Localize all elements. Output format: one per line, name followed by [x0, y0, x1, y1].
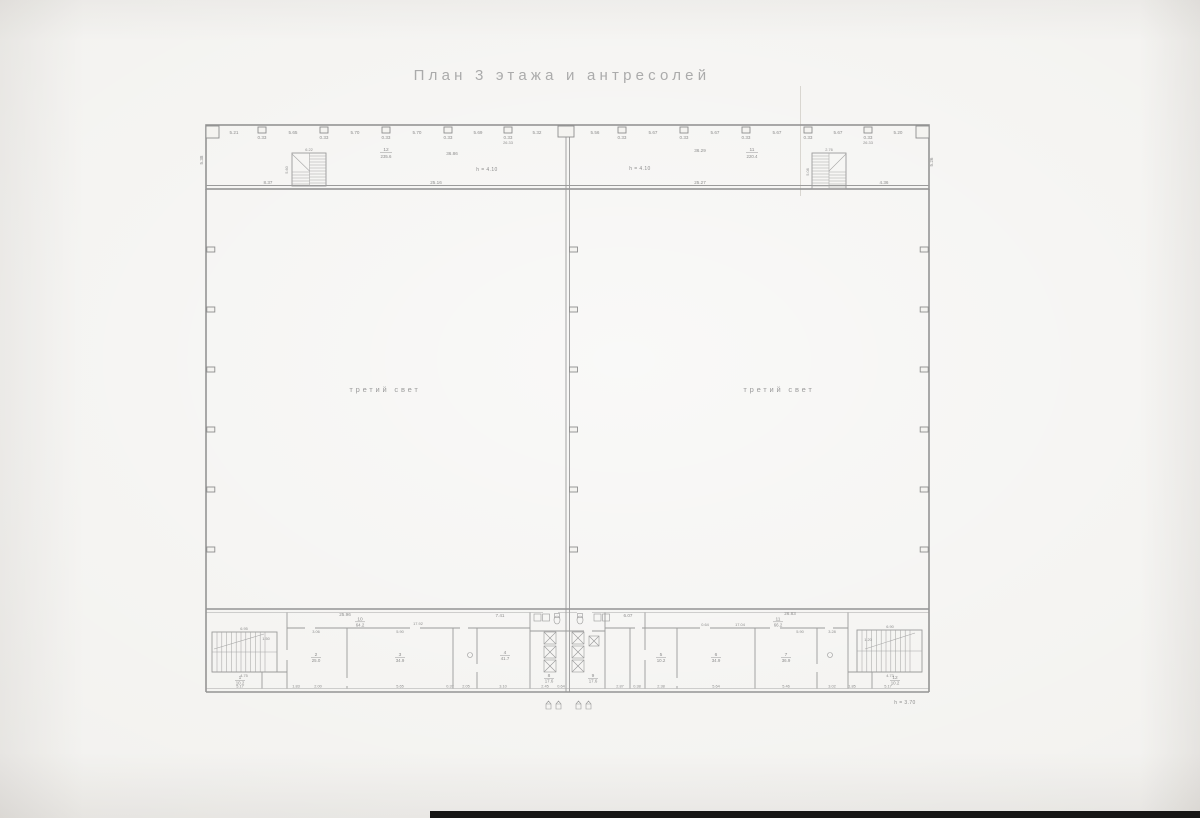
room-area: 17.6 — [589, 679, 598, 684]
height-note: h = 4.10 — [629, 166, 650, 172]
sink-icon — [594, 614, 601, 621]
dim-label: 2.87 — [616, 684, 624, 689]
room-area: 34.9 — [396, 658, 405, 663]
dim-label: 6.90 — [886, 624, 894, 629]
floor-plan-drawing: План 3 этажа и антресолей 5 — [0, 0, 1200, 818]
dim-label: 1.83 — [292, 684, 300, 689]
wall-pilaster — [920, 487, 928, 492]
wall-pilaster — [570, 427, 578, 432]
room-area: 25.0 — [312, 658, 321, 663]
dim-label: 5.08 — [805, 168, 810, 176]
dim-label: 0.37 — [446, 684, 454, 689]
dim-label: 0.33 — [258, 135, 267, 140]
dim-label: 3.28 — [828, 629, 836, 634]
stair-break-line — [292, 154, 310, 171]
dim-label: 0.33 — [444, 135, 453, 140]
dim-label: 5.65 — [396, 684, 404, 689]
partitions-left — [287, 613, 530, 689]
room-area: 10.2 — [657, 658, 666, 663]
dim-label: 17.04 — [735, 622, 746, 627]
dim-label: 5.67 — [711, 130, 720, 135]
dim-label: 8.37 — [264, 180, 273, 185]
dim-label: 5.90 — [796, 629, 804, 634]
wall-pilaster — [570, 307, 578, 312]
wall-pilaster — [207, 427, 215, 432]
wall-column — [864, 127, 872, 133]
dim-label: 6.95 — [240, 626, 248, 631]
room-area: 10.2 — [236, 681, 245, 686]
dim-label: 36.29 — [694, 148, 706, 153]
dim-label: 5.69 — [474, 130, 483, 135]
shaft-cross-lines — [544, 632, 599, 672]
dim-label: 0.64 — [557, 684, 565, 689]
stair-treads — [292, 156, 326, 184]
wall-pilaster — [207, 247, 215, 252]
double-height-halls: третий свет третий свет — [206, 189, 929, 609]
wall-column — [382, 127, 390, 133]
sink-icon — [543, 614, 550, 621]
dim-label: 6.22 — [305, 147, 313, 152]
wall-pilaster — [207, 307, 215, 312]
wall-pilaster — [207, 367, 215, 372]
dim-label: 1.20 — [864, 637, 872, 642]
wall-column — [742, 127, 750, 133]
dim-label: 25.16 — [430, 180, 442, 185]
dim-label: 0.33 — [382, 135, 391, 140]
partitions-right — [645, 613, 848, 689]
center-column — [558, 126, 574, 137]
room-area: 10.2 — [891, 681, 900, 686]
dim-label: 0.33 — [680, 135, 689, 140]
ground-floor-strip: 25.96 7.41 6.07 26.83 3.06 5.90 17.92 6.… — [206, 609, 929, 709]
wall-pilaster — [570, 487, 578, 492]
dim-label: 5.26 — [929, 157, 934, 166]
dim-label: 1.85 — [848, 684, 856, 689]
dim-label: 26.33 — [503, 140, 513, 145]
dim-label: 3.10 — [499, 684, 507, 689]
stair-ground-left — [212, 632, 287, 689]
dim-label: 2.38 — [657, 684, 665, 689]
room-area: 34.9 — [712, 658, 721, 663]
wall-pilaster — [207, 547, 215, 552]
wall-column — [618, 127, 626, 133]
dim-label: 5.67 — [834, 130, 843, 135]
wall-pilaster — [920, 367, 928, 372]
wall-pilaster — [207, 487, 215, 492]
room-number: 12 — [383, 147, 389, 153]
dim-label: 5.38 — [199, 155, 204, 164]
corner-column — [916, 126, 929, 138]
hall-label-left: третий свет — [349, 385, 420, 394]
dim-label: 5.70 — [413, 130, 422, 135]
wall-pilaster — [920, 547, 928, 552]
wall-pilaster — [570, 547, 578, 552]
dim-label: 17.92 — [413, 621, 423, 626]
dim-label: 5.46 — [782, 684, 790, 689]
stair-break-line — [865, 633, 915, 649]
wall-column — [444, 127, 452, 133]
room-area: 220.4 — [747, 154, 759, 159]
dim-label: 25.96 — [339, 612, 351, 617]
dim-label: 4.75 — [240, 673, 248, 678]
mezzanine-strip: 5.21 0.33 5.65 0.33 5.70 0.33 5.70 0.33 … — [199, 125, 934, 692]
dim-label: 5.90 — [396, 629, 404, 634]
room-number: 11 — [750, 147, 755, 153]
wall-pilaster — [920, 427, 928, 432]
dim-label: 0.33 — [618, 135, 627, 140]
wall-column — [320, 127, 328, 133]
wall-pilaster — [920, 247, 928, 252]
dim-label: 5.64 — [712, 684, 720, 689]
dim-label: 5.20 — [894, 130, 903, 135]
wall-pilaster — [570, 247, 578, 252]
dim-label: 4.36 — [880, 180, 889, 185]
dim-label: 2.76 — [825, 147, 833, 152]
dim-label: 25.27 — [694, 180, 706, 185]
room-area: 36.9 — [782, 658, 791, 663]
room-area: 17.6 — [545, 679, 554, 684]
riser-symbols — [546, 701, 591, 709]
wall-column — [680, 127, 688, 133]
dim-label: 5.67 — [649, 130, 658, 135]
dim-label: 6.07 — [624, 613, 633, 618]
stair-mezzanine-right: 2.76 5.08 — [805, 147, 846, 189]
corner-column — [206, 126, 219, 138]
stair-break-line — [829, 154, 846, 171]
dim-label: 1.50 — [262, 636, 270, 641]
scanned-floor-plan-sheet: План 3 этажа и антресолей 5 — [0, 0, 1200, 818]
dim-label: 0.33 — [742, 135, 751, 140]
room-area: 66.2 — [774, 623, 783, 628]
dim-label: 2.45 — [541, 684, 549, 689]
dim-label: 0.38 — [633, 684, 641, 689]
room-area: 41.7 — [501, 656, 510, 661]
dim-label: 7.41 — [496, 613, 505, 618]
stair-break-line — [214, 634, 264, 649]
wall-column — [504, 127, 512, 133]
dim-label: 36.86 — [446, 151, 458, 156]
fixture-icon — [468, 653, 473, 658]
dim-label: 3.02 — [828, 684, 836, 689]
dim-label: 5.67 — [773, 130, 782, 135]
dim-label: 26.33 — [863, 140, 873, 145]
wall-column — [258, 127, 266, 133]
dim-label: 26.83 — [784, 611, 796, 616]
dim-label: 0.64 — [701, 622, 709, 627]
dim-label: 5.32 — [533, 130, 542, 135]
height-note: h = 4.10 — [476, 167, 497, 173]
vent-shaft-squares — [544, 632, 599, 672]
dim-label: 2.00 — [314, 684, 322, 689]
dim-label: 5.65 — [289, 130, 298, 135]
stair-mezzanine-left: 6.22 5.60 — [284, 147, 326, 186]
sink-icon — [534, 614, 541, 621]
wall-pilaster — [920, 307, 928, 312]
dim-label: 5.60 — [284, 165, 289, 173]
stair-ground-right — [848, 630, 922, 689]
scan-edge-strip — [430, 811, 1200, 818]
sink-icon — [603, 614, 610, 621]
height-note: h = 3.70 — [894, 700, 915, 706]
dim-label: 5.56 — [591, 130, 600, 135]
wall-column — [804, 127, 812, 133]
dim-label: 5.70 — [351, 130, 360, 135]
wall-pilaster — [570, 367, 578, 372]
room-labels: 10 64.2 1 10.2 2 25.0 3 34.9 4 41.7 8 17… — [235, 617, 900, 686]
fixture-icon — [828, 653, 833, 658]
dim-label: 2.05 — [462, 684, 470, 689]
dim-label: 3.06 — [312, 629, 320, 634]
page-title: План 3 этажа и антресолей — [414, 67, 711, 84]
dim-label: 5.21 — [230, 130, 239, 135]
room-area: 235.6 — [381, 154, 393, 159]
hall-label-right: третий свет — [743, 385, 814, 394]
room-area: 64.2 — [356, 623, 365, 628]
dim-label: 0.33 — [804, 135, 813, 140]
dim-label: 0.33 — [320, 135, 329, 140]
riser-symbol-shapes — [546, 701, 591, 709]
